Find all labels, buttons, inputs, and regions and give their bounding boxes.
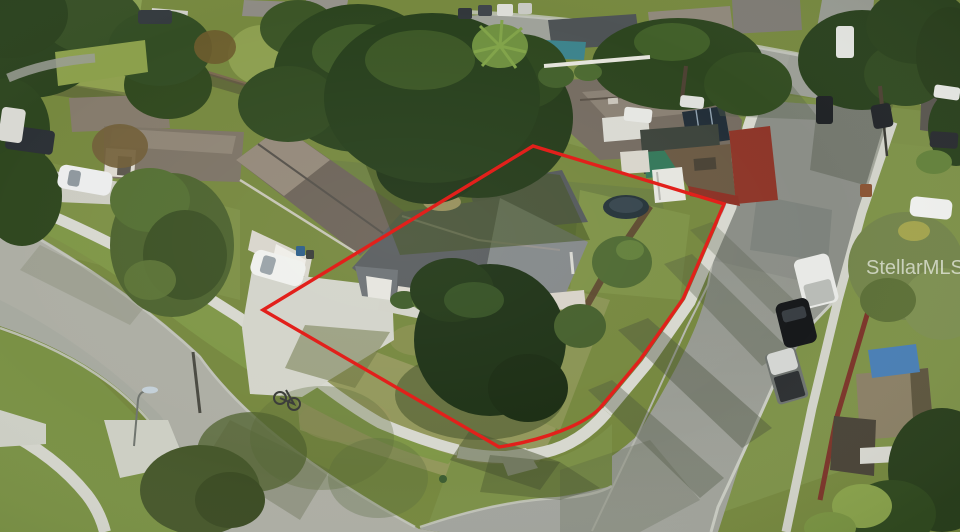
svg-text:StellarMLS: StellarMLS — [866, 257, 960, 279]
